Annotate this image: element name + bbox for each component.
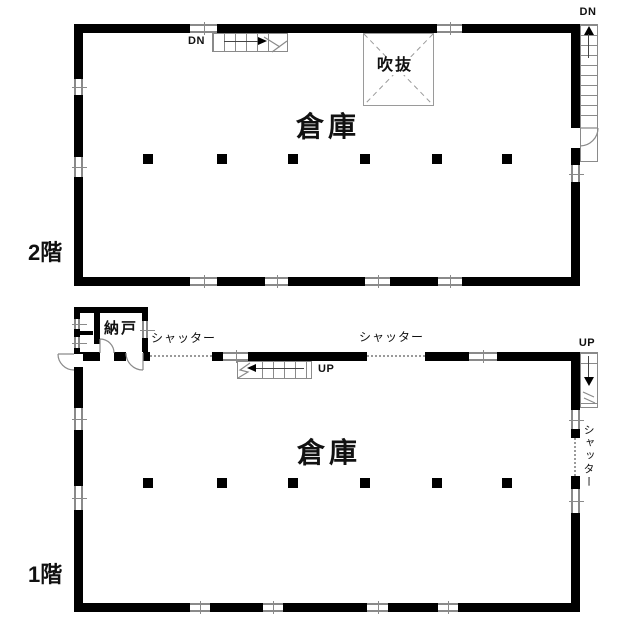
annex-shelf-wall (80, 331, 93, 335)
window (74, 157, 83, 177)
interior-stair-dn-label: DN (188, 35, 205, 47)
window (74, 408, 83, 430)
window (74, 337, 80, 348)
window (190, 603, 210, 612)
shutter-label: シャッター (359, 331, 424, 344)
stair-break-line (582, 390, 596, 404)
shutter-opening (571, 438, 580, 476)
shutter-label-vertical: シャッター (582, 424, 594, 510)
exterior-stair-up-label: UP (576, 337, 598, 349)
column-marker (217, 478, 227, 488)
window (263, 603, 283, 612)
stair-treads (262, 362, 311, 378)
floor2-name-label: 2階 (28, 241, 62, 265)
window (190, 277, 217, 286)
stair-direction-line (588, 34, 589, 58)
column-marker (143, 154, 153, 164)
shutter-opening (367, 352, 425, 361)
window (74, 486, 83, 510)
column-marker (502, 154, 512, 164)
door-swing-arc (100, 339, 114, 353)
stair-direction-arrow (584, 26, 594, 35)
window (365, 277, 390, 286)
column-marker (288, 154, 298, 164)
window (190, 24, 217, 33)
shutter-opening (150, 352, 212, 361)
column-marker (217, 154, 227, 164)
annex-wall (74, 307, 148, 313)
column-marker (432, 154, 442, 164)
column-marker (288, 478, 298, 488)
door-opening (100, 352, 114, 361)
window (438, 277, 462, 286)
stair-direction-line (588, 356, 589, 378)
window (571, 410, 580, 429)
interior-stair-up-label: UP (318, 363, 334, 375)
floor1-name-label: 1階 (28, 563, 62, 587)
window (437, 24, 462, 33)
storage-room-label: 納戸 (98, 321, 144, 338)
floor-plan-canvas: 吹抜 DN DN 倉庫 2階 納戸 (0, 0, 633, 627)
window (367, 603, 388, 612)
window (223, 352, 248, 361)
stair-direction-line (256, 368, 304, 369)
window (74, 79, 83, 95)
door-swing-arc (126, 353, 143, 370)
exterior-stair-dn-label: DN (578, 6, 598, 18)
window (571, 165, 580, 182)
window (469, 352, 497, 361)
window (265, 277, 288, 286)
door-opening (74, 354, 83, 367)
column-marker (143, 478, 153, 488)
stair-direction-arrow (584, 377, 594, 386)
shutter-label: シャッター (151, 332, 216, 345)
window (438, 603, 458, 612)
column-marker (360, 154, 370, 164)
floor1-room-label: 倉庫 (297, 438, 361, 469)
void-area: 吹抜 (363, 33, 434, 106)
window (571, 489, 580, 513)
door-opening (571, 128, 580, 148)
stair-direction-line (224, 41, 260, 42)
stair-break-line (264, 34, 288, 54)
column-marker (360, 478, 370, 488)
column-marker (432, 478, 442, 488)
floor2-room-label: 倉庫 (296, 112, 360, 143)
stair-break-line (238, 362, 252, 379)
column-marker (502, 478, 512, 488)
window (74, 319, 80, 329)
door-swing-arc (58, 354, 74, 370)
void-label: 吹抜 (375, 57, 415, 75)
door-swing-arc (580, 128, 599, 147)
